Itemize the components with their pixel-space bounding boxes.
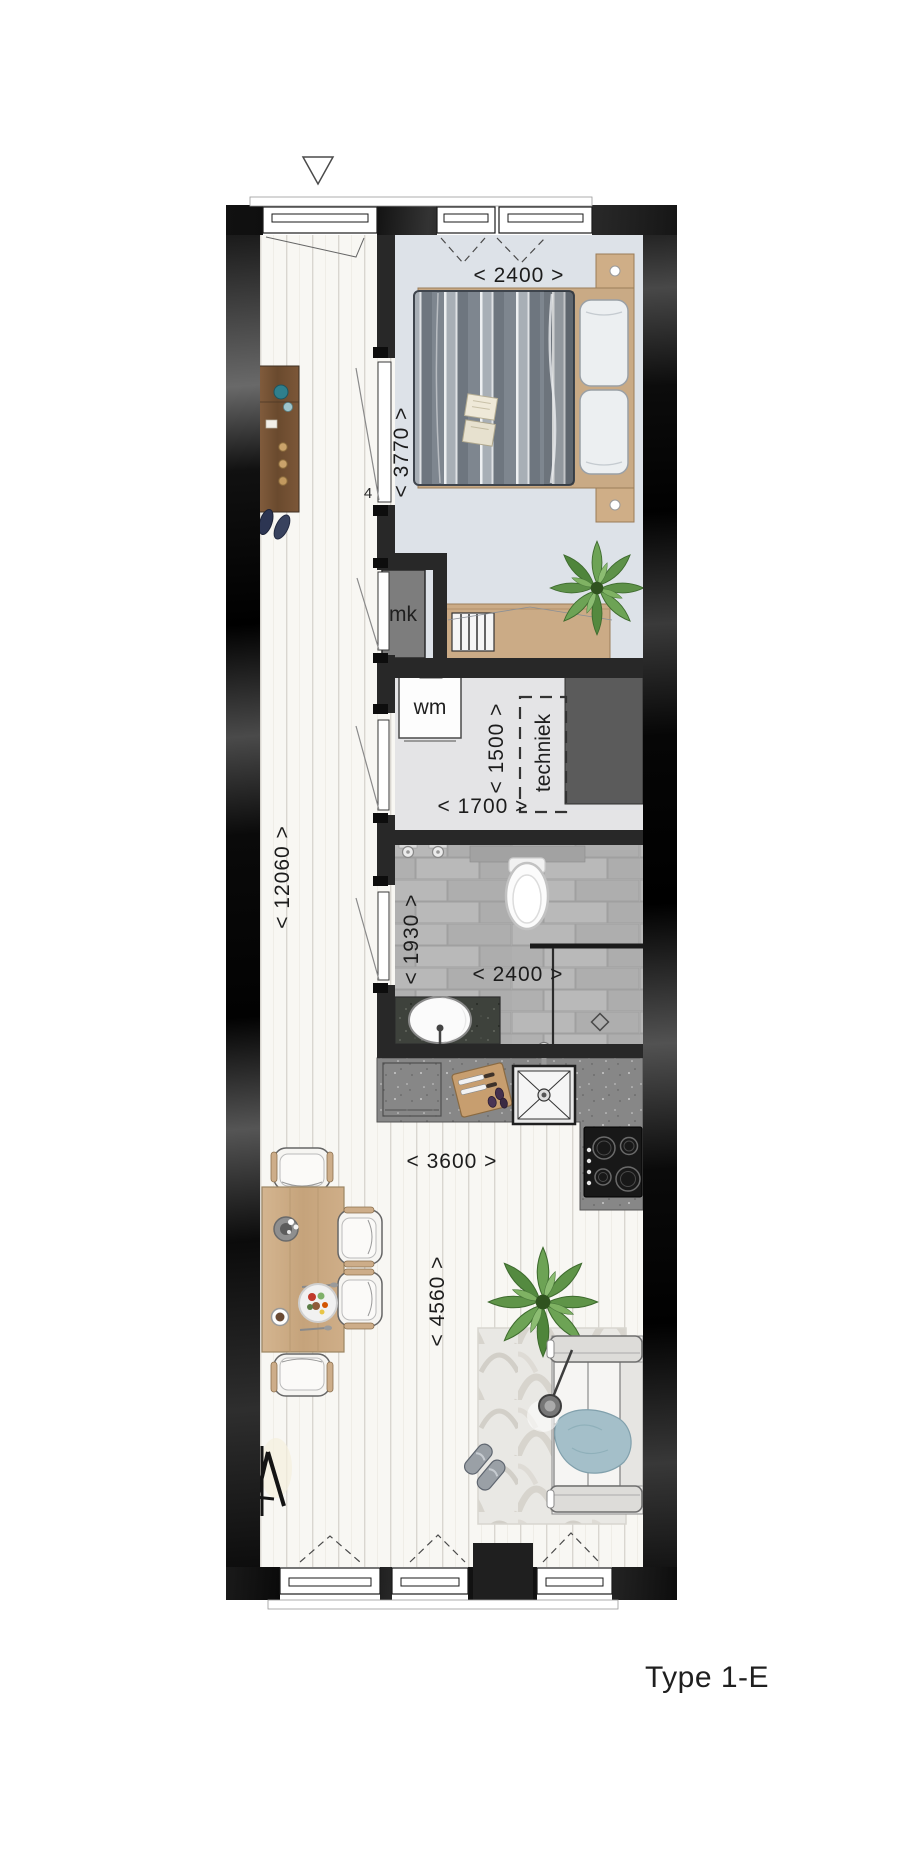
window-bottom-a	[280, 1568, 380, 1594]
dim-bathroom-width: < 2400 >	[473, 963, 564, 986]
window-bottom-c	[537, 1568, 612, 1594]
decor-bowl	[274, 385, 288, 399]
outer-sill-bottom	[268, 1600, 618, 1609]
floor-plan-drawing: < 2400 > < 3770 > < 12060 > < 1500 > < 1…	[0, 0, 900, 1849]
dining-chair-right-2	[338, 1269, 382, 1329]
label-meter-cupboard: mk	[389, 603, 417, 626]
label-techniek: techniek	[532, 713, 555, 792]
dim-hall-width: < 1700 >	[438, 795, 529, 818]
dim-bedroom-depth: < 3770 >	[390, 407, 413, 498]
outer-sill-top	[250, 197, 592, 206]
dim-bedroom-width: < 2400 >	[474, 264, 565, 287]
door-note: 4	[364, 485, 372, 502]
bathroom-sink	[395, 997, 500, 1051]
sofa	[547, 1336, 643, 1514]
wall-pillar	[473, 1543, 533, 1600]
wall-bottom	[226, 1567, 280, 1600]
dim-kitchen-width: < 3600 >	[407, 1150, 498, 1173]
floor-plan-page: < 2400 > < 3770 > < 12060 > < 1500 > < 1…	[0, 0, 900, 1849]
dim-corridor-length: < 12060 >	[271, 825, 294, 929]
bathroom-door	[378, 892, 389, 980]
mk-door	[378, 572, 389, 650]
window-bedroom-left	[437, 207, 495, 233]
candle	[279, 443, 287, 451]
shaft-block	[565, 662, 643, 804]
dining-chair-bottom	[271, 1354, 333, 1396]
plan-title: Type 1-E	[645, 1661, 769, 1694]
dim-hall-depth: < 1500 >	[485, 703, 508, 794]
label-washing-machine: wm	[413, 696, 447, 719]
decor-book	[266, 420, 277, 428]
dining-chair-top	[271, 1148, 333, 1190]
entrance-triangle-marker	[303, 157, 333, 184]
candle	[279, 460, 287, 468]
window-bottom-b	[392, 1568, 468, 1594]
window-corridor-top	[263, 207, 377, 233]
pillow	[580, 390, 628, 474]
bed	[414, 288, 634, 488]
dim-living-depth: < 4560 >	[426, 1256, 449, 1347]
wall-right	[643, 205, 677, 1600]
sofa-armrest	[550, 1486, 642, 1512]
dining-chair-right-1	[338, 1207, 382, 1267]
window-bedroom-right	[499, 207, 592, 233]
cooktop	[584, 1127, 642, 1197]
dim-bathroom-depth: < 1930 >	[400, 894, 423, 985]
wall-top	[226, 205, 263, 235]
sofa-armrest	[550, 1336, 642, 1362]
hall-door	[378, 720, 389, 810]
wall-left	[226, 205, 260, 1600]
candle	[279, 477, 287, 485]
toilet	[506, 858, 548, 929]
